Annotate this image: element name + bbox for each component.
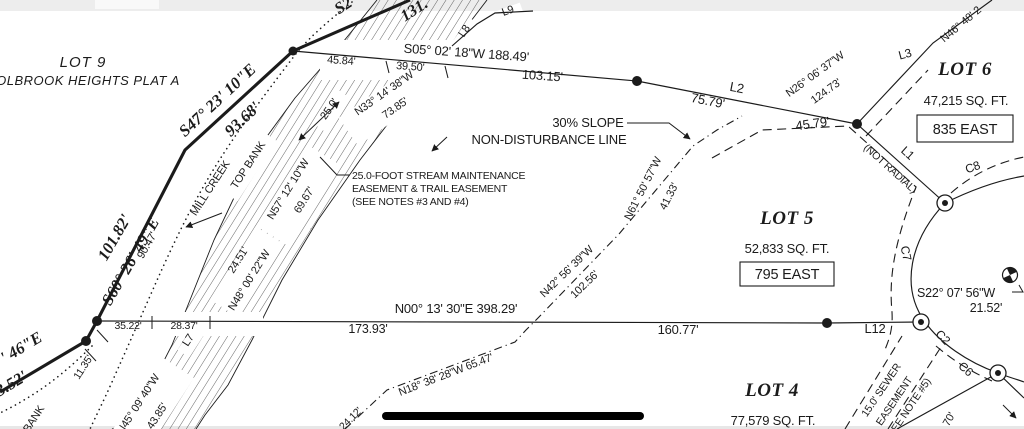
- slope-non-disturbance-line: [345, 116, 742, 429]
- dim-3-52-clipped: 3.52': [0, 366, 31, 400]
- dim-24-12-clipped: 24.12': [337, 405, 365, 429]
- bearing-s47-23-10e: S47° 23' 10"E: [175, 60, 260, 141]
- dim-35-22: 35.22': [114, 320, 141, 332]
- segment-l12: L12: [864, 321, 885, 336]
- top-bank-label-lower: TOP BANK: [8, 403, 48, 429]
- sewer-manhole-symbol: [1000, 265, 1020, 285]
- lot5-area: 52,833 SQ. FT.: [745, 241, 830, 256]
- plat-drawing: LOT 9 HOLBROOK HEIGHTS PLAT A S2 131. S4…: [0, 0, 1024, 429]
- slope-note-line2: NON-DISTURBANCE LINE: [472, 132, 627, 147]
- corner-arrow: [1003, 405, 1016, 418]
- curve-c7: C7: [898, 244, 915, 262]
- dim-39-50: 39.50': [396, 60, 425, 74]
- bearing-46e-clipped: ' 46"E: [0, 327, 46, 367]
- slope-leader-arrow: [627, 123, 690, 139]
- stream-note-line2: EASEMENT & TRAIL EASEMENT: [352, 183, 508, 195]
- bearing-n00-13-30e-398-29: N00° 13' 30"E 398.29': [395, 301, 518, 316]
- dim-93-68: 93.68': [221, 98, 265, 141]
- dim-75-79: 75.79': [690, 90, 726, 111]
- bearing-n42-56-39w: N42° 56' 39"W: [538, 243, 597, 300]
- dim-45-79: 45.79': [795, 114, 831, 134]
- dim-103-15: 103.15': [521, 67, 563, 85]
- lot4-name: LOT 4: [744, 380, 799, 401]
- plat-survey-page: LOT 9 HOLBROOK HEIGHTS PLAT A S2 131. S4…: [0, 0, 1024, 429]
- dim-70-clipped: 70': [941, 410, 958, 428]
- lot6-area: 47,215 SQ. FT.: [924, 93, 1009, 108]
- bearing-n61-50-57w: N61° 50' 57"W: [622, 154, 664, 222]
- bearing-s22-07-56w: S22° 07' 56"W: [917, 286, 995, 300]
- lot9-name: LOT 9: [60, 54, 107, 71]
- lot6-name: LOT 6: [937, 59, 992, 80]
- dim-160-77: 160.77': [658, 322, 699, 337]
- dim-45-84: 45.84': [327, 54, 356, 68]
- creek-flow-arrow: [186, 213, 222, 227]
- segment-l1: L1: [898, 143, 917, 162]
- manhole-leader: [1012, 285, 1023, 292]
- easement-arrow: [432, 137, 447, 151]
- stream-note-line3: (SEE NOTES #3 AND #4): [352, 196, 469, 208]
- lot4-area: 77,579 SQ. FT.: [731, 413, 816, 428]
- segment-l2: L2: [729, 79, 746, 96]
- lot5-name: LOT 5: [759, 208, 814, 229]
- bearing-n18-38-28w-65-47: N18° 38' 28"W 65.47': [397, 352, 495, 399]
- segment-l3: L3: [897, 46, 914, 63]
- redaction-scale-bar: [382, 412, 644, 420]
- lot6-address: 835 EAST: [933, 122, 998, 138]
- lot5-address: 795 EAST: [755, 267, 820, 283]
- curve-c2: C2: [933, 327, 954, 348]
- curve-c8: C8: [963, 158, 982, 176]
- slope-note-line1: 30% SLOPE: [552, 115, 624, 130]
- stream-note-line1: 25.0-FOOT STREAM MAINTENANCE: [352, 170, 526, 182]
- dim-173-93: 173.93': [348, 322, 387, 336]
- viewer-chrome-notch: [95, 0, 159, 9]
- lot9-plat: HOLBROOK HEIGHTS PLAT A: [0, 73, 180, 88]
- dim-21-52: 21.52': [970, 301, 1002, 315]
- mill-creek-label: MILL CREEK: [188, 158, 233, 218]
- dim-28-37: 28.37': [170, 320, 197, 332]
- dim-41-33: 41.33': [658, 181, 682, 212]
